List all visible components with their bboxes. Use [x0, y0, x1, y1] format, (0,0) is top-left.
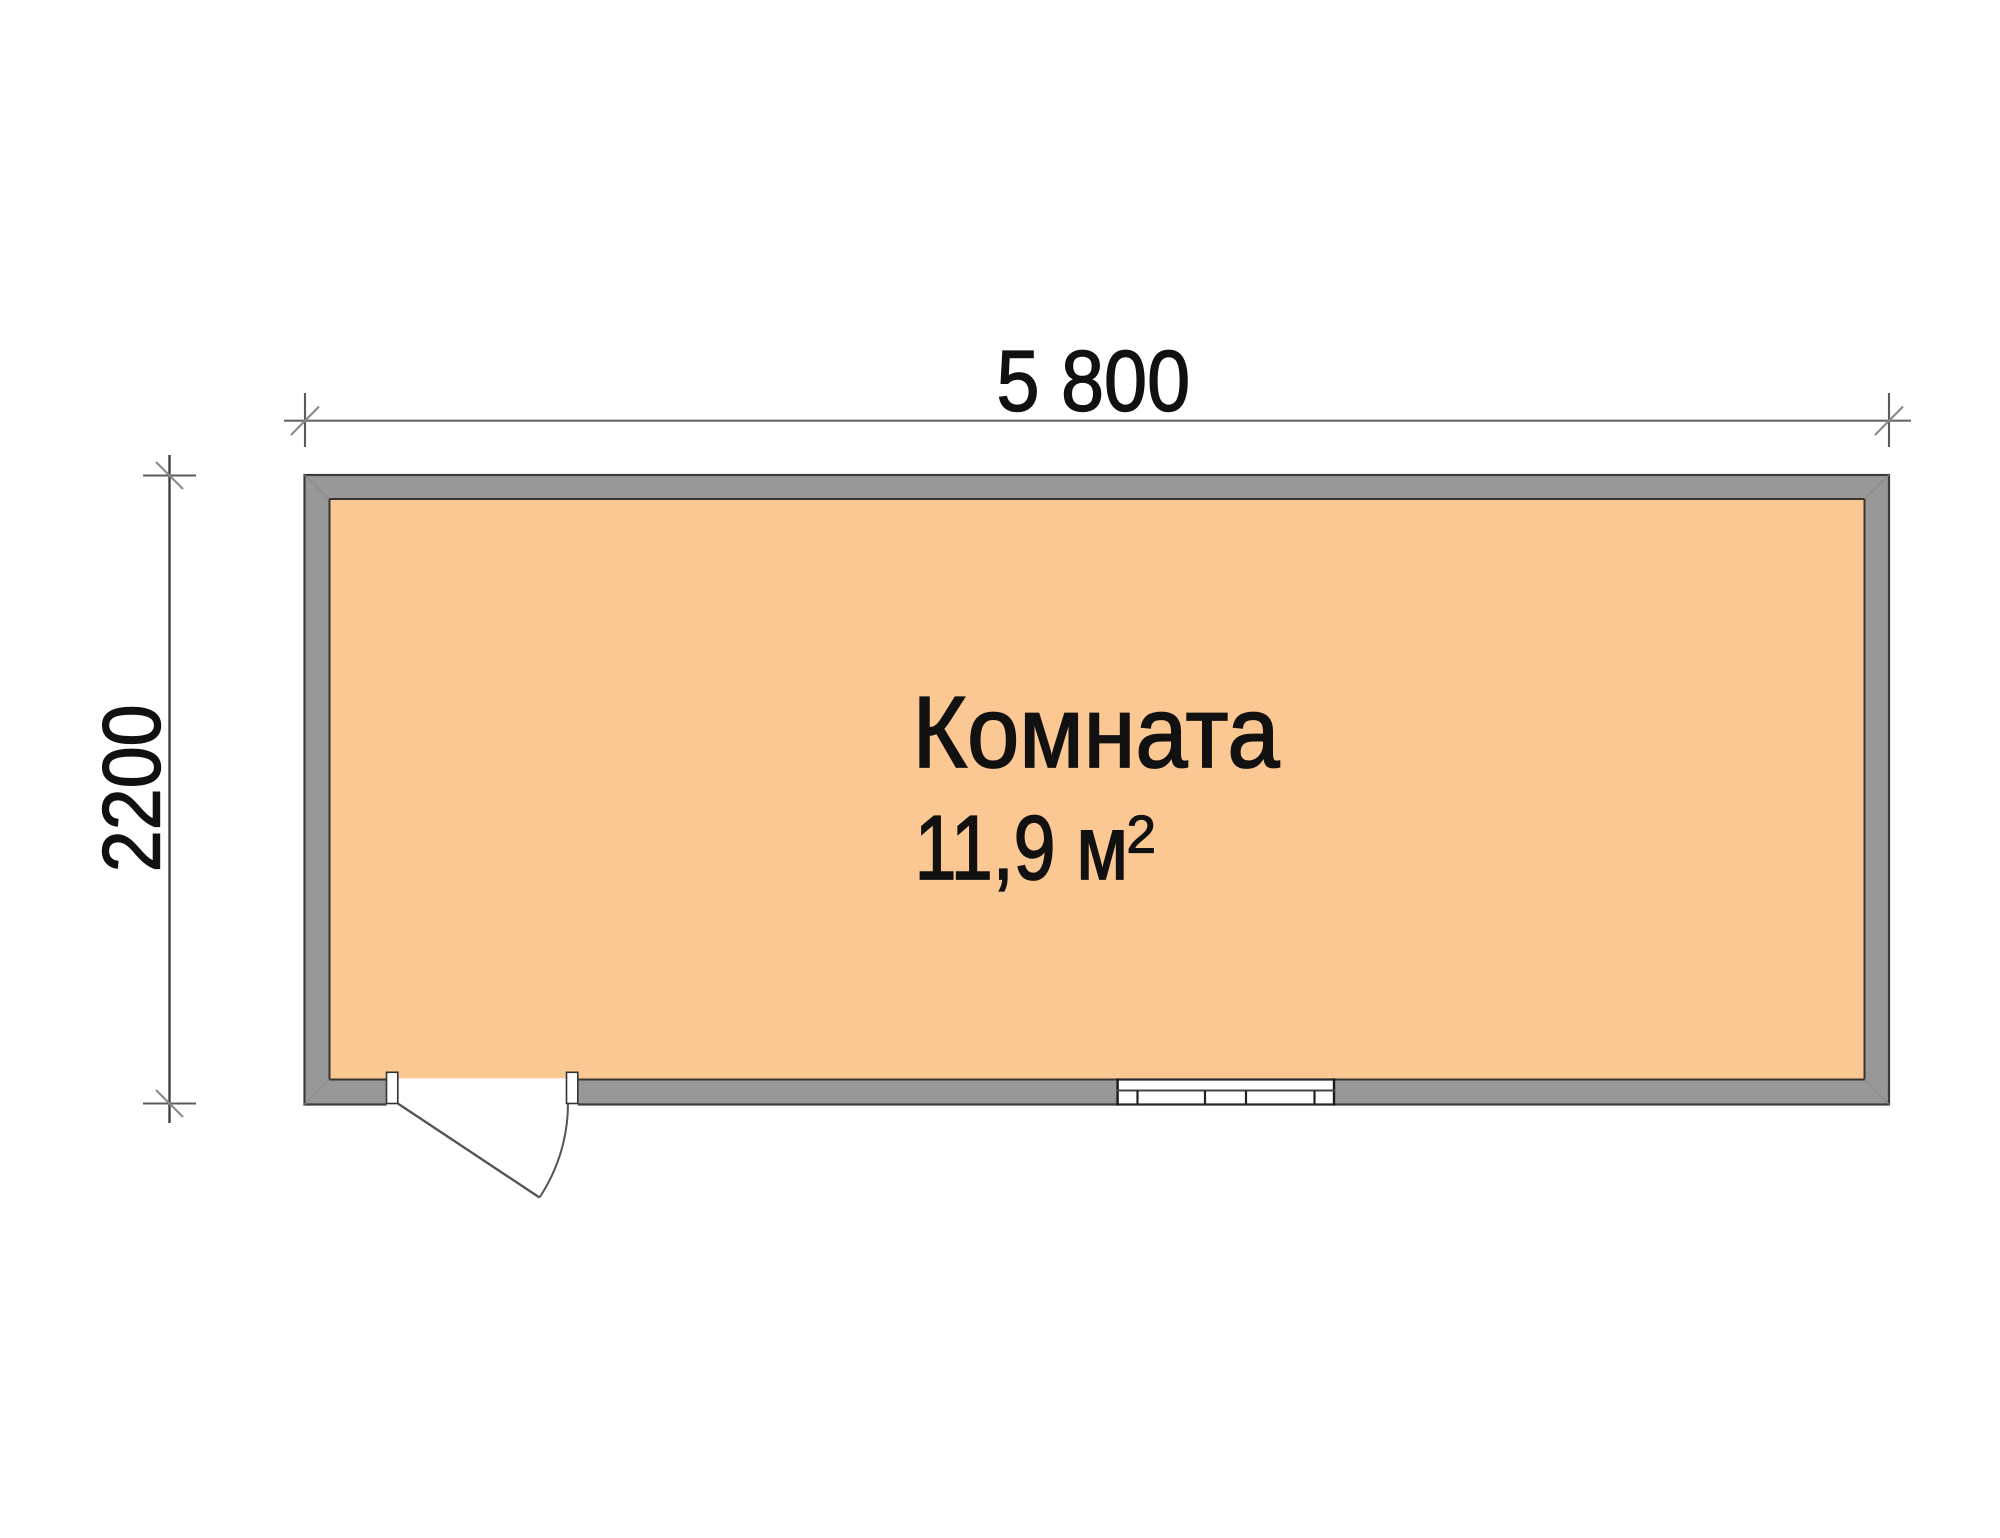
svg-text:11,9 м: 11,9 м [915, 797, 1129, 899]
svg-text:5 800: 5 800 [997, 334, 1191, 430]
svg-text:2200: 2200 [86, 704, 177, 872]
svg-text:Комната: Комната [913, 676, 1281, 789]
svg-text:2: 2 [1127, 805, 1156, 864]
